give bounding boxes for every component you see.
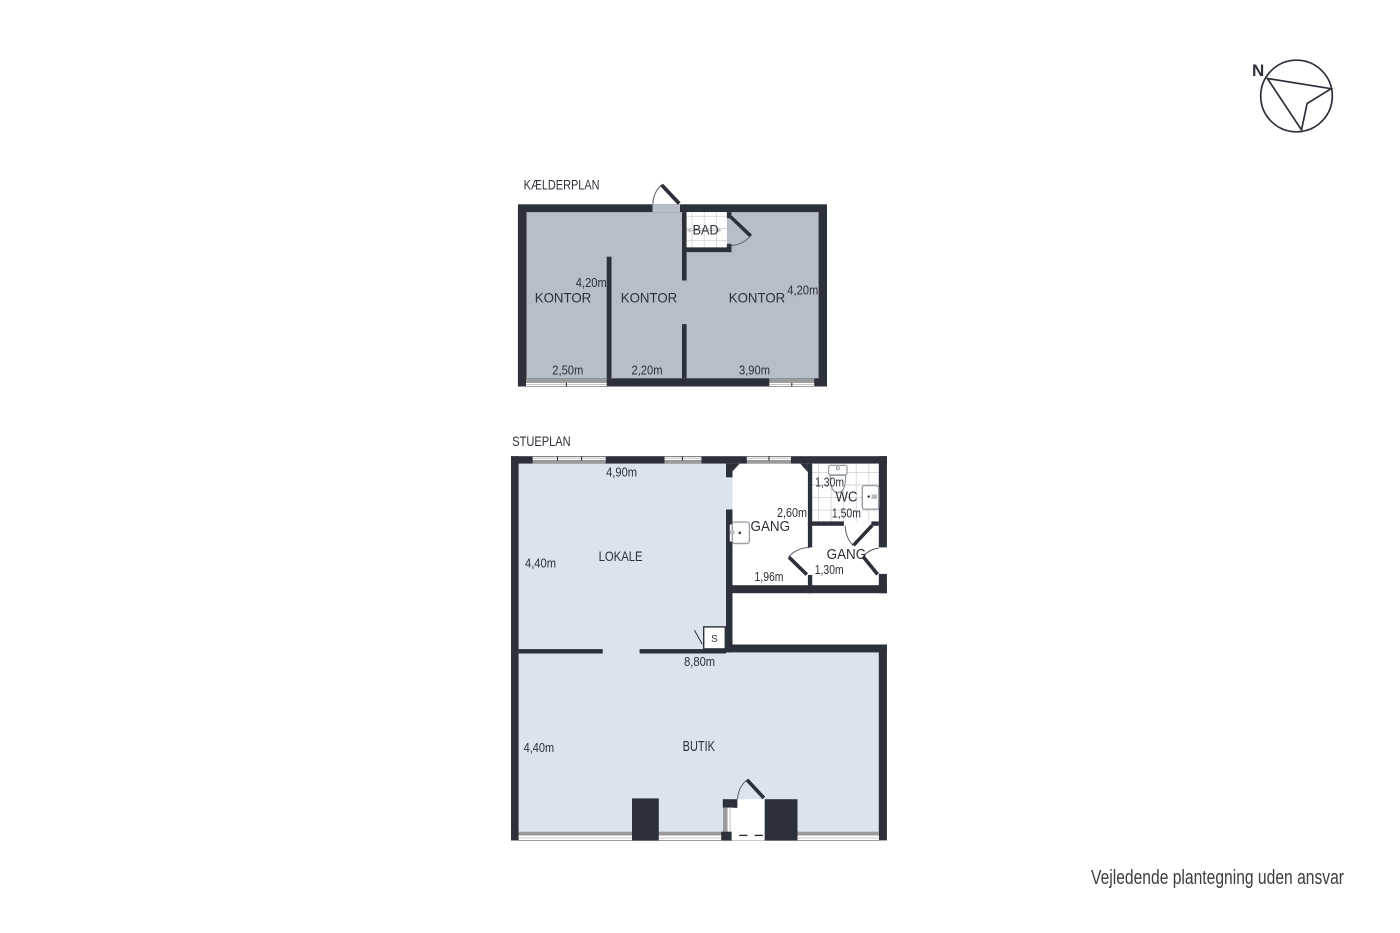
svg-text:4,40m: 4,40m: [525, 557, 556, 571]
svg-text:KONTOR: KONTOR: [621, 290, 678, 306]
svg-text:BAD: BAD: [693, 222, 719, 237]
svg-text:S: S: [711, 634, 718, 645]
svg-text:Vejledende plantegning uden an: Vejledende plantegning uden ansvar: [1091, 867, 1344, 889]
svg-text:N: N: [1252, 61, 1264, 80]
svg-text:2,20m: 2,20m: [632, 363, 663, 377]
svg-text:LOKALE: LOKALE: [599, 548, 643, 564]
svg-text:1,30m: 1,30m: [815, 563, 844, 577]
svg-text:3,90m: 3,90m: [739, 363, 770, 377]
svg-text:2,60m: 2,60m: [777, 506, 807, 520]
svg-text:4,40m: 4,40m: [524, 741, 555, 755]
svg-text:2,50m: 2,50m: [552, 363, 583, 377]
svg-text:4,20m: 4,20m: [787, 284, 818, 298]
svg-text:KONTOR: KONTOR: [729, 290, 786, 306]
svg-text:1,96m: 1,96m: [755, 570, 784, 584]
svg-text:GANG: GANG: [827, 547, 867, 563]
svg-text:BUTIK: BUTIK: [683, 739, 716, 755]
svg-text:1,50m: 1,50m: [832, 507, 861, 521]
svg-text:4,20m: 4,20m: [576, 276, 607, 290]
svg-text:4,90m: 4,90m: [606, 466, 637, 480]
svg-text:KÆLDERPLAN: KÆLDERPLAN: [524, 178, 600, 193]
svg-text:8,80m: 8,80m: [684, 655, 715, 669]
svg-text:STUEPLAN: STUEPLAN: [512, 434, 570, 449]
svg-text:KONTOR: KONTOR: [535, 290, 592, 306]
svg-text:GANG: GANG: [751, 519, 791, 535]
svg-text:WC: WC: [836, 490, 858, 506]
svg-text:1,30m: 1,30m: [815, 475, 844, 489]
